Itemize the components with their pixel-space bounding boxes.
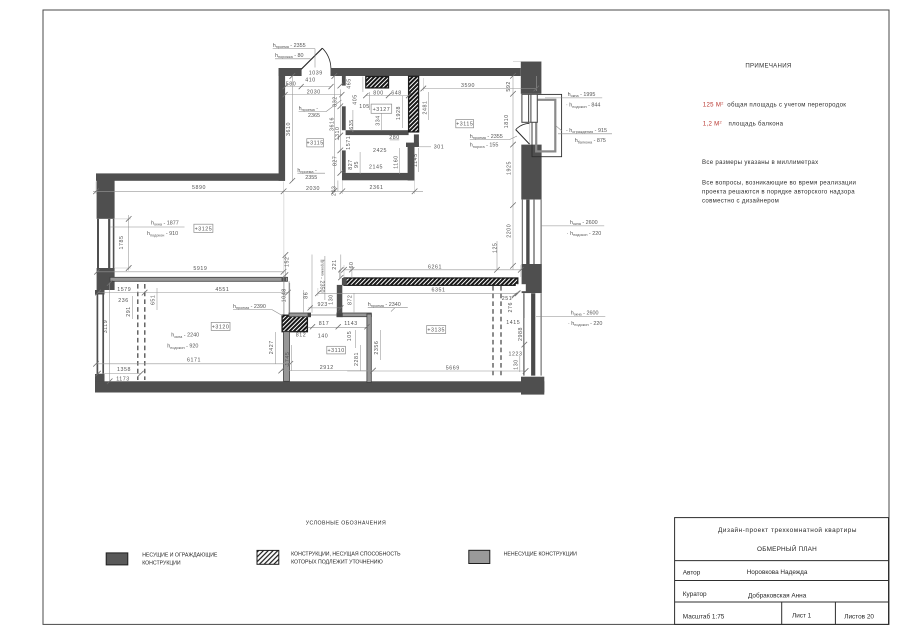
svg-text:НЕСУЩИЕ И ОГРАЖДАЮЩИЕ: НЕСУЩИЕ И ОГРАЖДАЮЩИЕ bbox=[142, 553, 218, 559]
svg-text:334: 334 bbox=[375, 115, 381, 126]
svg-text:1048: 1048 bbox=[282, 288, 288, 302]
svg-text:827: 827 bbox=[332, 156, 338, 167]
svg-text:Норовкова Надежда: Норовкова Надежда bbox=[747, 569, 808, 576]
svg-text:4551: 4551 bbox=[215, 287, 229, 293]
svg-text:1785: 1785 bbox=[119, 236, 125, 250]
svg-text:Листов 20: Листов 20 bbox=[844, 613, 874, 620]
svg-text:5890: 5890 bbox=[192, 185, 206, 191]
svg-text:+3135: +3135 bbox=[427, 328, 445, 334]
svg-text:КОТОРЫХ ПОДЛЕЖИТ УТОЧНЕНИЮ: КОТОРЫХ ПОДЛЕЖИТ УТОЧНЕНИЮ bbox=[291, 559, 383, 565]
svg-text:291: 291 bbox=[126, 306, 132, 317]
svg-text:130: 130 bbox=[513, 359, 519, 370]
svg-text:1223: 1223 bbox=[509, 351, 523, 357]
svg-text:923: 923 bbox=[317, 302, 328, 308]
svg-text:1173: 1173 bbox=[116, 377, 130, 383]
svg-text:276: 276 bbox=[508, 302, 514, 313]
svg-text:6351: 6351 bbox=[432, 288, 446, 294]
svg-text:+3110: +3110 bbox=[327, 348, 344, 354]
svg-text:827: 827 bbox=[348, 159, 354, 170]
svg-text:3610: 3610 bbox=[286, 122, 292, 136]
svg-text:2361: 2361 bbox=[370, 185, 384, 191]
svg-text:812: 812 bbox=[296, 333, 307, 339]
svg-text:площадь балкона: площадь балкона bbox=[729, 120, 784, 127]
svg-text:872: 872 bbox=[348, 295, 354, 306]
svg-text:125 М2: 125 М2 bbox=[703, 102, 724, 109]
svg-text:405: 405 bbox=[353, 94, 359, 105]
svg-text:105: 105 bbox=[359, 104, 370, 110]
svg-text:2912: 2912 bbox=[320, 365, 334, 371]
svg-text:1810: 1810 bbox=[504, 114, 510, 128]
svg-text:5919: 5919 bbox=[193, 266, 207, 272]
svg-text:проекта решаются в порядке авт: проекта решаются в порядке авторского на… bbox=[702, 189, 855, 196]
svg-text:КОНСТРУКЦИИ: КОНСТРУКЦИИ bbox=[142, 561, 181, 567]
svg-text:203: 203 bbox=[332, 186, 338, 197]
svg-text:301: 301 bbox=[434, 144, 445, 150]
svg-text:Дизайн-проект трехкомнатной кв: Дизайн-проект трехкомнатной квартиры bbox=[718, 526, 857, 534]
svg-text:1745: 1745 bbox=[285, 352, 291, 366]
svg-text:1143: 1143 bbox=[344, 321, 358, 327]
svg-text:800: 800 bbox=[373, 91, 384, 97]
svg-text:580: 580 bbox=[286, 82, 297, 88]
svg-text:Куратор: Куратор bbox=[683, 591, 707, 598]
svg-text:130: 130 bbox=[329, 294, 335, 305]
svg-text:2365: 2365 bbox=[308, 113, 320, 119]
svg-text:1145: 1145 bbox=[413, 153, 419, 167]
svg-text:236: 236 bbox=[118, 298, 129, 304]
svg-text:ПРИМЕЧАНИЯ: ПРИМЕЧАНИЯ bbox=[745, 63, 791, 70]
svg-text:635: 635 bbox=[349, 119, 355, 130]
svg-text:Масштаб 1:75: Масштаб 1:75 bbox=[683, 612, 725, 620]
svg-text:+3120: +3120 bbox=[212, 324, 230, 330]
svg-text:Все размеры указаны в миллимет: Все размеры указаны в миллиметрах bbox=[702, 159, 818, 166]
svg-text:3590: 3590 bbox=[461, 83, 475, 89]
svg-text:УСЛОВНЫЕ ОБОЗНАЧЕНИЯ: УСЛОВНЫЕ ОБОЗНАЧЕНИЯ bbox=[306, 521, 387, 527]
svg-text:86: 86 bbox=[303, 292, 309, 299]
svg-text:1160: 1160 bbox=[394, 155, 400, 169]
svg-text:152: 152 bbox=[284, 257, 290, 268]
svg-text:КОНСТРУКЦИИ, НЕСУЩАЯ СПОСОБНОС: КОНСТРУКЦИИ, НЕСУЩАЯ СПОСОБНОСТЬ bbox=[291, 552, 401, 558]
svg-text:2355: 2355 bbox=[305, 175, 317, 181]
svg-text:221: 221 bbox=[332, 259, 338, 270]
svg-text:60: 60 bbox=[349, 262, 355, 269]
svg-text:1579: 1579 bbox=[117, 287, 131, 293]
svg-text:410: 410 bbox=[305, 78, 316, 84]
svg-text:2427: 2427 bbox=[269, 340, 275, 354]
svg-text:совместно с дизайнером: совместно с дизайнером bbox=[702, 197, 779, 204]
svg-text:1415: 1415 bbox=[506, 320, 520, 326]
svg-text:2481: 2481 bbox=[422, 101, 428, 115]
svg-text:651: 651 bbox=[150, 295, 156, 306]
svg-text:общая площадь с учетом перегор: общая площадь с учетом перегородок bbox=[727, 102, 846, 109]
svg-text:2281: 2281 bbox=[354, 352, 360, 366]
svg-text:832: 832 bbox=[333, 96, 339, 107]
svg-text:6171: 6171 bbox=[187, 357, 201, 363]
svg-text:2988: 2988 bbox=[518, 327, 524, 341]
svg-text:Все вопросы, возникающие во вр: Все вопросы, возникающие во время реализ… bbox=[702, 180, 856, 187]
svg-text:2030: 2030 bbox=[307, 89, 321, 95]
svg-text:1571: 1571 bbox=[346, 136, 352, 150]
svg-text:592: 592 bbox=[506, 81, 512, 92]
svg-text:Лист 1: Лист 1 bbox=[792, 613, 812, 620]
svg-text:465: 465 bbox=[346, 78, 352, 89]
svg-text:2356: 2356 bbox=[374, 341, 380, 355]
svg-text:3119: 3119 bbox=[103, 320, 109, 334]
svg-text:2200: 2200 bbox=[507, 224, 513, 238]
svg-text:ОБМЕРНЫЙ ПЛАН: ОБМЕРНЫЙ ПЛАН bbox=[757, 544, 817, 553]
svg-text:Автор: Автор bbox=[683, 570, 701, 577]
svg-text:95: 95 bbox=[354, 161, 360, 168]
svg-text:6261: 6261 bbox=[428, 264, 442, 270]
svg-text:2425: 2425 bbox=[373, 148, 387, 154]
svg-text:105: 105 bbox=[347, 331, 353, 342]
svg-text:1358: 1358 bbox=[117, 367, 131, 373]
svg-text:1310: 1310 bbox=[335, 127, 341, 141]
svg-text:1,2 М2: 1,2 М2 bbox=[703, 120, 722, 127]
svg-text:+3125: +3125 bbox=[195, 226, 213, 232]
svg-text:1039: 1039 bbox=[309, 71, 323, 77]
svg-text:280: 280 bbox=[389, 135, 400, 141]
svg-text:125: 125 bbox=[493, 243, 499, 254]
svg-text:648: 648 bbox=[391, 91, 402, 97]
svg-text:1925: 1925 bbox=[507, 161, 513, 175]
svg-text:НЕНЕСУЩИЕ КОНСТРУКЦИИ: НЕНЕСУЩИЕ КОНСТРУКЦИИ bbox=[504, 552, 577, 558]
svg-text:5669: 5669 bbox=[446, 366, 460, 372]
svg-text:+3127: +3127 bbox=[373, 107, 391, 113]
svg-text:Добраковская Анна: Добраковская Анна bbox=[748, 592, 807, 600]
svg-text:251: 251 bbox=[502, 296, 513, 302]
svg-text:+3115: +3115 bbox=[306, 141, 323, 147]
svg-text:+3115: +3115 bbox=[456, 122, 473, 128]
svg-text:2145: 2145 bbox=[369, 165, 383, 171]
svg-text:817: 817 bbox=[319, 321, 330, 327]
svg-text:2030: 2030 bbox=[306, 186, 320, 192]
svg-text:140: 140 bbox=[318, 334, 329, 340]
svg-text:1928: 1928 bbox=[396, 106, 402, 120]
